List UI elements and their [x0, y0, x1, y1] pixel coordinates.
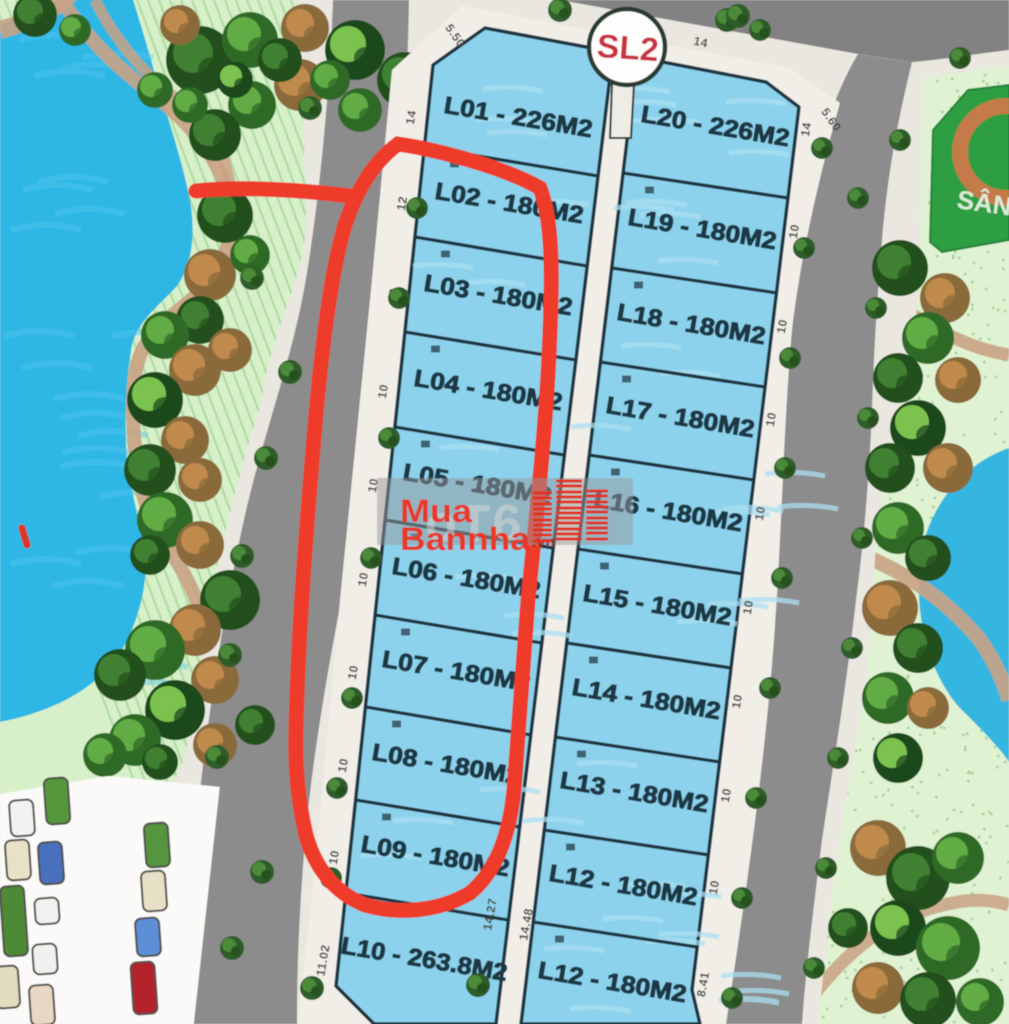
svg-text:14: 14: [692, 34, 709, 51]
svg-text:10: 10: [706, 879, 722, 896]
svg-text:10: 10: [335, 757, 351, 774]
svg-text:10: 10: [326, 849, 342, 866]
svg-text:10: 10: [355, 571, 371, 588]
svg-text:10: 10: [786, 223, 802, 240]
svg-text:10: 10: [740, 599, 756, 616]
svg-text:10: 10: [774, 318, 790, 335]
svg-text:Bannha: Bannha: [400, 521, 530, 557]
svg-text:10: 10: [375, 383, 391, 400]
svg-text:SL2: SL2: [596, 27, 660, 68]
svg-text:14: 14: [403, 109, 419, 126]
svg-text:10: 10: [718, 787, 734, 804]
svg-text:10: 10: [345, 664, 361, 681]
svg-text:14: 14: [798, 121, 814, 138]
svg-text:10: 10: [729, 693, 745, 710]
svg-text:10: 10: [763, 411, 779, 428]
svg-text:10: 10: [752, 505, 768, 522]
